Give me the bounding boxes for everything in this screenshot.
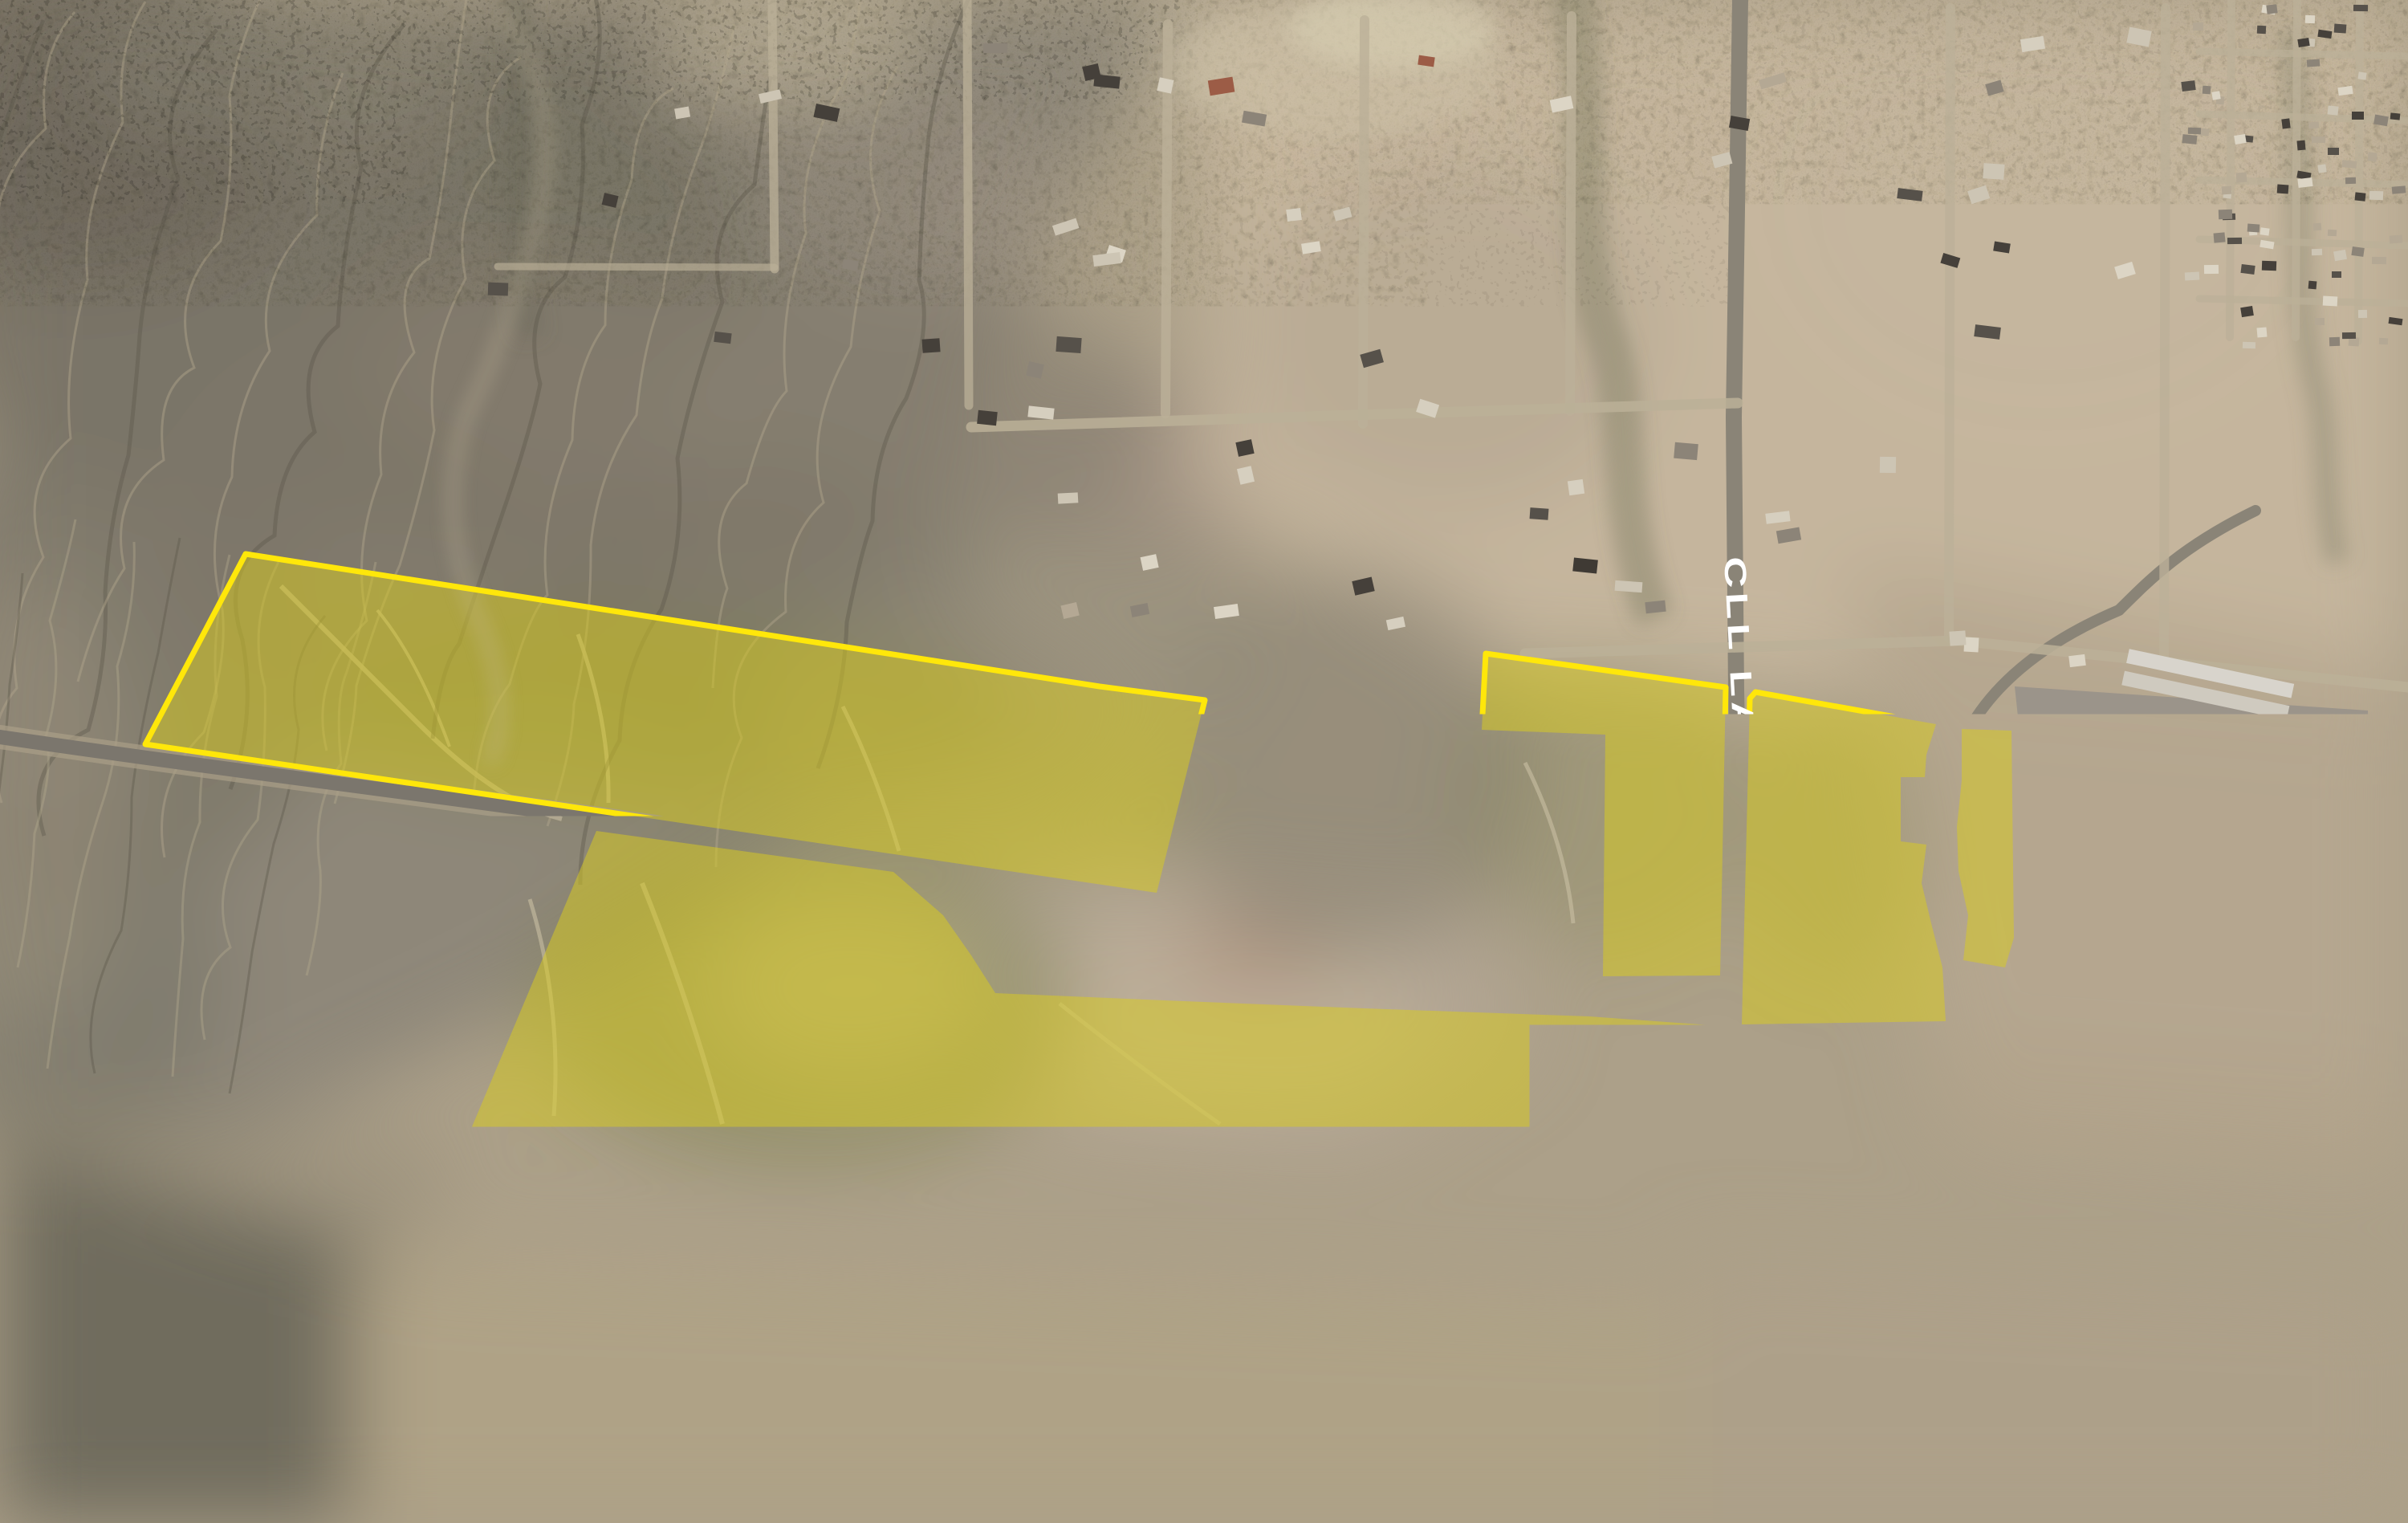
svg-text:25: 25 <box>173 1105 305 1266</box>
